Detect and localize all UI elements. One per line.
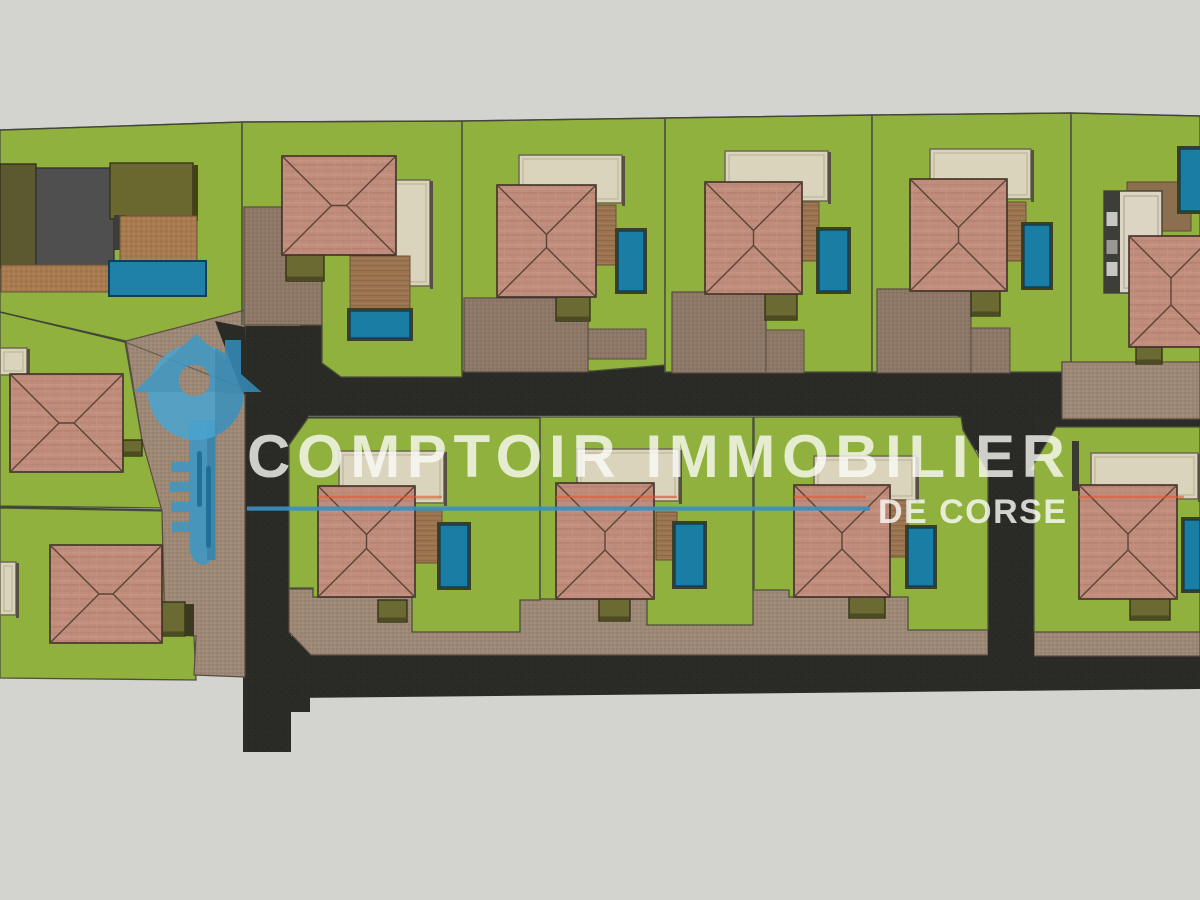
svg-text:COMPTOIR IMMOBILIER: COMPTOIR IMMOBILIER (247, 423, 1065, 490)
svg-text:DE CORSE: DE CORSE (878, 493, 1066, 531)
